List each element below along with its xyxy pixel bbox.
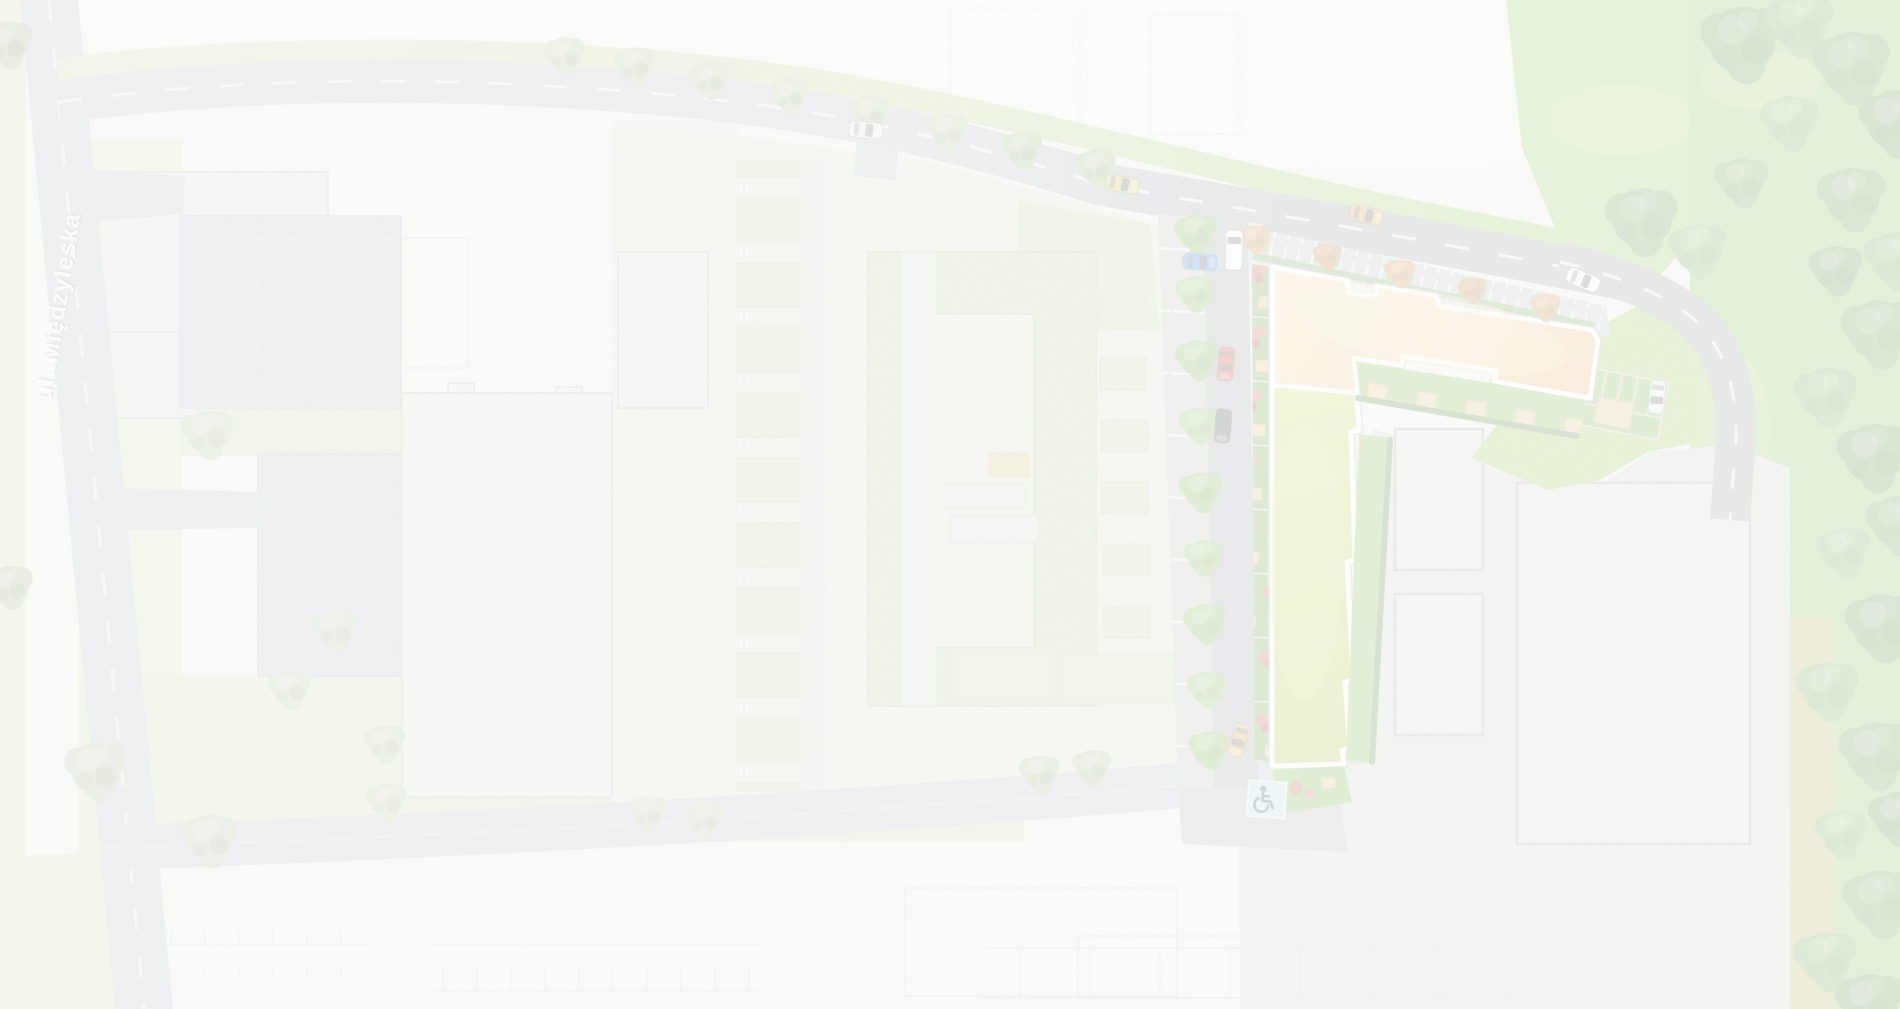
texture-overlay xyxy=(0,0,1900,1009)
site-plan: ul. Międzyleska xyxy=(0,0,1900,1009)
